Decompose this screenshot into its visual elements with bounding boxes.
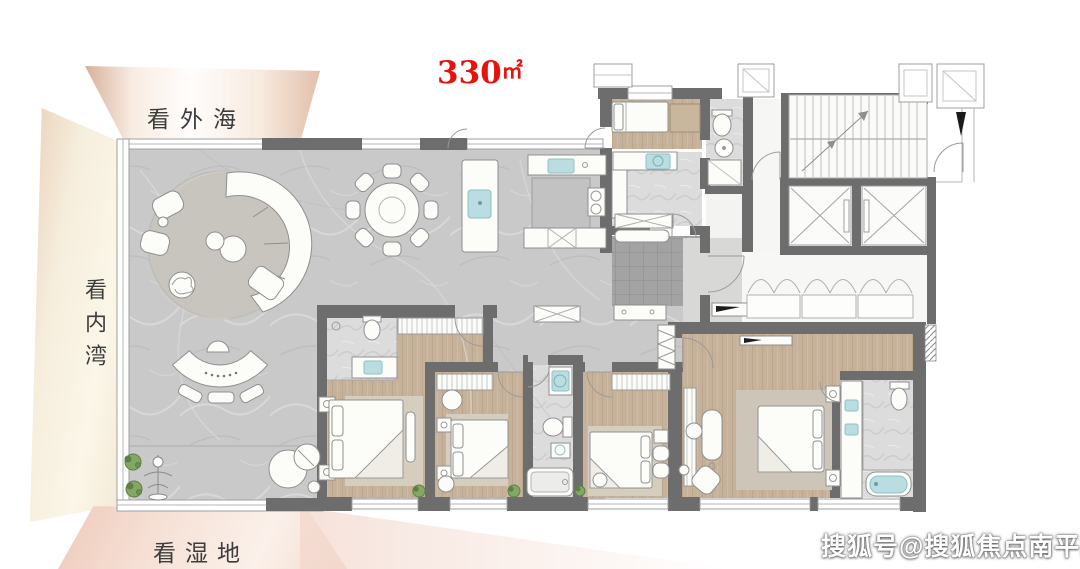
wardrobe-icon <box>612 374 670 390</box>
maid-room <box>612 102 700 132</box>
chair-icon <box>653 446 669 461</box>
area-unit: ㎡ <box>502 58 523 83</box>
round-chair-icon <box>442 390 462 410</box>
wardrobe-icon <box>398 318 483 334</box>
window-lintel <box>420 138 467 150</box>
side-table-icon <box>158 217 168 227</box>
chair-icon <box>686 423 702 439</box>
double-vanity-icon <box>841 381 862 498</box>
floorplan-svg <box>0 0 1080 569</box>
hatched-wall <box>925 325 936 361</box>
view-label-wetland: 看湿地 <box>153 534 249 568</box>
plant-icon <box>413 485 425 497</box>
kitchen-cabinet <box>524 228 606 248</box>
wardrobe-icon <box>437 374 493 390</box>
desk-icon <box>702 410 722 460</box>
kitchen-block <box>532 178 590 228</box>
area-value: 330 <box>437 55 502 91</box>
toilet-icon <box>364 320 380 340</box>
coffee-table-icon <box>206 232 224 250</box>
bench-icon <box>406 412 415 462</box>
view-label-outer-sea: 看外海 <box>147 100 246 134</box>
toilet-icon <box>891 388 907 410</box>
window-lintel <box>262 138 362 150</box>
plant-icon <box>575 486 585 496</box>
nightstand-icon <box>654 430 668 443</box>
stove-icon <box>588 188 605 216</box>
watermark: 搜狐号@搜狐焦点南平站 <box>821 527 1080 563</box>
stool-icon <box>438 476 454 492</box>
round-chair-icon <box>294 444 320 470</box>
area-label: 330㎡ <box>437 58 523 89</box>
chair-icon <box>653 463 669 478</box>
sink-icon <box>548 159 574 173</box>
toilet-icon <box>713 114 731 136</box>
sink-icon <box>845 424 858 435</box>
plant-icon <box>125 454 141 470</box>
plant-icon <box>126 481 142 497</box>
dresser-icon <box>670 104 700 132</box>
sink-icon <box>364 361 382 374</box>
plant-icon <box>508 485 520 497</box>
nightstand-icon <box>826 386 840 402</box>
bench-icon <box>615 230 669 242</box>
view-label-inner-bay: 看内湾 <box>78 278 110 377</box>
toilet-icon <box>543 418 563 436</box>
dining-table-icon <box>346 164 438 256</box>
nightstand-icon <box>826 470 840 486</box>
floorplan-page: 看外海 看内湾 看湿地 330㎡ 搜狐号@搜狐焦点南平站 <box>0 0 1080 569</box>
nightstand-icon <box>437 418 451 432</box>
hydrant-marker-icon <box>956 112 966 136</box>
sink-icon <box>845 400 858 411</box>
stool-icon <box>593 473 607 487</box>
